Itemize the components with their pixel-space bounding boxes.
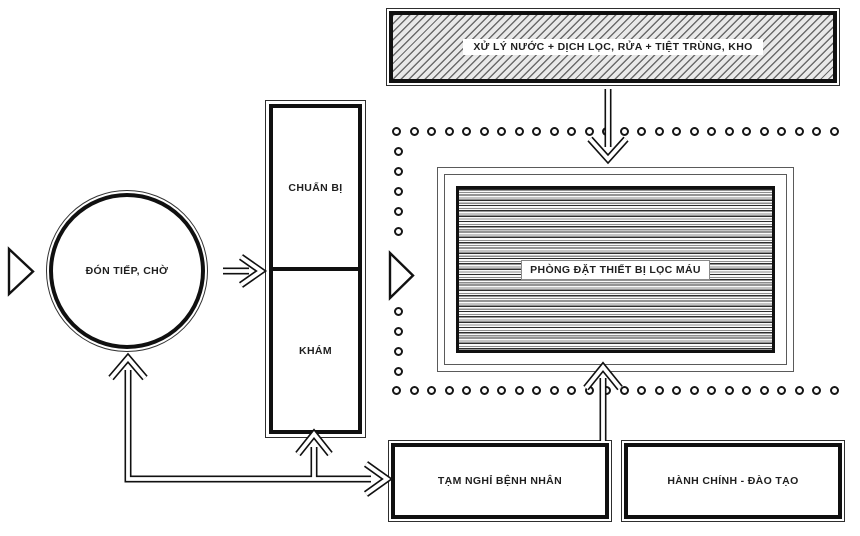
boundary-dot-top [620,127,629,136]
boundary-dot-top [655,127,664,136]
boundary-dot-bottom [497,386,506,395]
arrow-water-to-room-icon [590,89,626,159]
entrance-arrow-boundary-icon [390,253,413,298]
boundary-dot-left [394,207,403,216]
prep-exam-box-inner: CHUẨN BỊ KHÁM [269,104,362,434]
boundary-dot-bottom [690,386,699,395]
boundary-dot-bottom [777,386,786,395]
boundary-dot-left [394,187,403,196]
dialysis-room-stripe-fill: PHÒNG ĐẶT THIẾT BỊ LỌC MÁU [456,186,775,353]
arrow-reception-to-preparation-icon [223,257,261,285]
boundary-dot-top [830,127,839,136]
boundary-dot-top [497,127,506,136]
patient-rest-label: TẠM NGHỈ BỆNH NHÂN [438,475,562,487]
reception-circle: ĐÓN TIẾP, CHỜ [46,190,208,352]
entrance-arrow-left-icon [9,249,33,294]
admin-training-box-inner: HÀNH CHÍNH - ĐÀO TẠO [624,443,842,519]
arrow-rest-to-room-icon [586,367,620,441]
boundary-dot-bottom [445,386,454,395]
boundary-dot-bottom [620,386,629,395]
boundary-dot-top [812,127,821,136]
boundary-dot-top [567,127,576,136]
dialysis-room-box-mid: PHÒNG ĐẶT THIẾT BỊ LỌC MÁU [444,174,787,365]
boundary-dot-top [637,127,646,136]
boundary-dot-top [445,127,454,136]
preparation-label: CHUẨN BỊ [288,182,342,194]
boundary-dot-top [427,127,436,136]
patient-rest-box: TẠM NGHỈ BỆNH NHÂN [388,440,612,522]
boundary-dot-bottom [830,386,839,395]
patient-rest-box-inner: TẠM NGHỈ BỆNH NHÂN [391,443,609,519]
boundary-dot-bottom [480,386,489,395]
boundary-dot-top [777,127,786,136]
boundary-dot-left [394,347,403,356]
boundary-dot-left [394,167,403,176]
boundary-dot-top [515,127,524,136]
boundary-dot-top [480,127,489,136]
boundary-dot-top [550,127,559,136]
boundary-dot-bottom [567,386,576,395]
admin-training-label: HÀNH CHÍNH - ĐÀO TẠO [667,475,798,487]
boundary-dot-bottom [637,386,646,395]
boundary-dot-bottom [602,386,611,395]
admin-training-box: HÀNH CHÍNH - ĐÀO TẠO [621,440,845,522]
boundary-dot-left [394,367,403,376]
boundary-dot-bottom [655,386,664,395]
boundary-dot-bottom [812,386,821,395]
boundary-dot-bottom [550,386,559,395]
examination-label: KHÁM [299,345,332,357]
boundary-dot-top [725,127,734,136]
boundary-dot-top [795,127,804,136]
boundary-dot-top [672,127,681,136]
boundary-dot-top [585,127,594,136]
boundary-dot-bottom [760,386,769,395]
boundary-dot-top [690,127,699,136]
examination-cell: KHÁM [273,271,358,430]
dialysis-room-label: PHÒNG ĐẶT THIẾT BỊ LỌC MÁU [521,260,710,280]
prep-exam-box: CHUẨN BỊ KHÁM [265,100,366,438]
dialysis-unit-layout-diagram: XỬ LÝ NƯỚC + DỊCH LỌC, RỬA + TIỆT TRÙNG,… [0,0,860,536]
boundary-dot-top [707,127,716,136]
boundary-dot-bottom [742,386,751,395]
water-treatment-label: XỬ LÝ NƯỚC + DỊCH LỌC, RỬA + TIỆT TRÙNG,… [463,39,762,55]
boundary-dot-bottom [392,386,401,395]
boundary-dot-top [410,127,419,136]
water-treatment-hatch-fill: XỬ LÝ NƯỚC + DỊCH LỌC, RỬA + TIỆT TRÙNG,… [389,11,837,83]
boundary-dot-bottom [462,386,471,395]
boundary-dot-bottom [585,386,594,395]
boundary-dot-top [602,127,611,136]
boundary-dot-top [760,127,769,136]
boundary-dot-bottom [707,386,716,395]
boundary-dot-left [394,227,403,236]
boundary-dot-bottom [515,386,524,395]
boundary-dot-left [394,147,403,156]
boundary-dot-top [742,127,751,136]
reception-circle-inner: ĐÓN TIẾP, CHỜ [49,193,205,349]
boundary-dot-bottom [427,386,436,395]
boundary-dot-bottom [532,386,541,395]
boundary-dot-bottom [672,386,681,395]
water-treatment-box: XỬ LÝ NƯỚC + DỊCH LỌC, RỬA + TIỆT TRÙNG,… [386,8,840,86]
reception-label: ĐÓN TIẾP, CHỜ [86,265,169,277]
boundary-dot-top [392,127,401,136]
boundary-dot-left [394,327,403,336]
preparation-cell: CHUẨN BỊ [273,108,358,271]
boundary-dot-top [462,127,471,136]
boundary-dot-bottom [795,386,804,395]
boundary-dot-top [532,127,541,136]
dialysis-room-box: PHÒNG ĐẶT THIẾT BỊ LỌC MÁU [437,167,794,372]
boundary-dot-bottom [725,386,734,395]
boundary-dot-left [394,307,403,316]
boundary-dot-bottom [410,386,419,395]
